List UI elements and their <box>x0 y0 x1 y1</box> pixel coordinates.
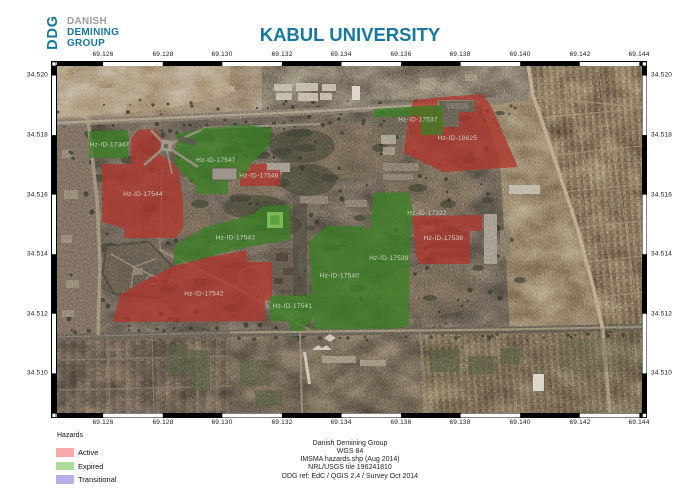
svg-text:Hz-ID-17539: Hz-ID-17539 <box>369 255 409 262</box>
svg-text:Hz-ID-17542: Hz-ID-17542 <box>184 291 224 298</box>
svg-text:Hz-ID-17540: Hz-ID-17540 <box>320 273 360 280</box>
svg-text:Hz-ID-17537: Hz-ID-17537 <box>398 117 438 124</box>
svg-text:Hz-ID-17347: Hz-ID-17347 <box>90 142 130 149</box>
svg-text:Hz-ID-17538: Hz-ID-17538 <box>424 235 464 242</box>
svg-text:Hz-ID-17547: Hz-ID-17547 <box>196 157 236 164</box>
svg-text:Hz-ID-17322: Hz-ID-17322 <box>407 210 447 217</box>
svg-text:Hz-ID-17546: Hz-ID-17546 <box>239 173 279 180</box>
svg-text:Hz-ID-17541: Hz-ID-17541 <box>273 303 313 310</box>
svg-text:Hz-ID-18625: Hz-ID-18625 <box>438 135 478 142</box>
svg-text:Hz-ID-17544: Hz-ID-17544 <box>123 191 163 198</box>
svg-text:Hz-ID-17543: Hz-ID-17543 <box>216 235 256 242</box>
